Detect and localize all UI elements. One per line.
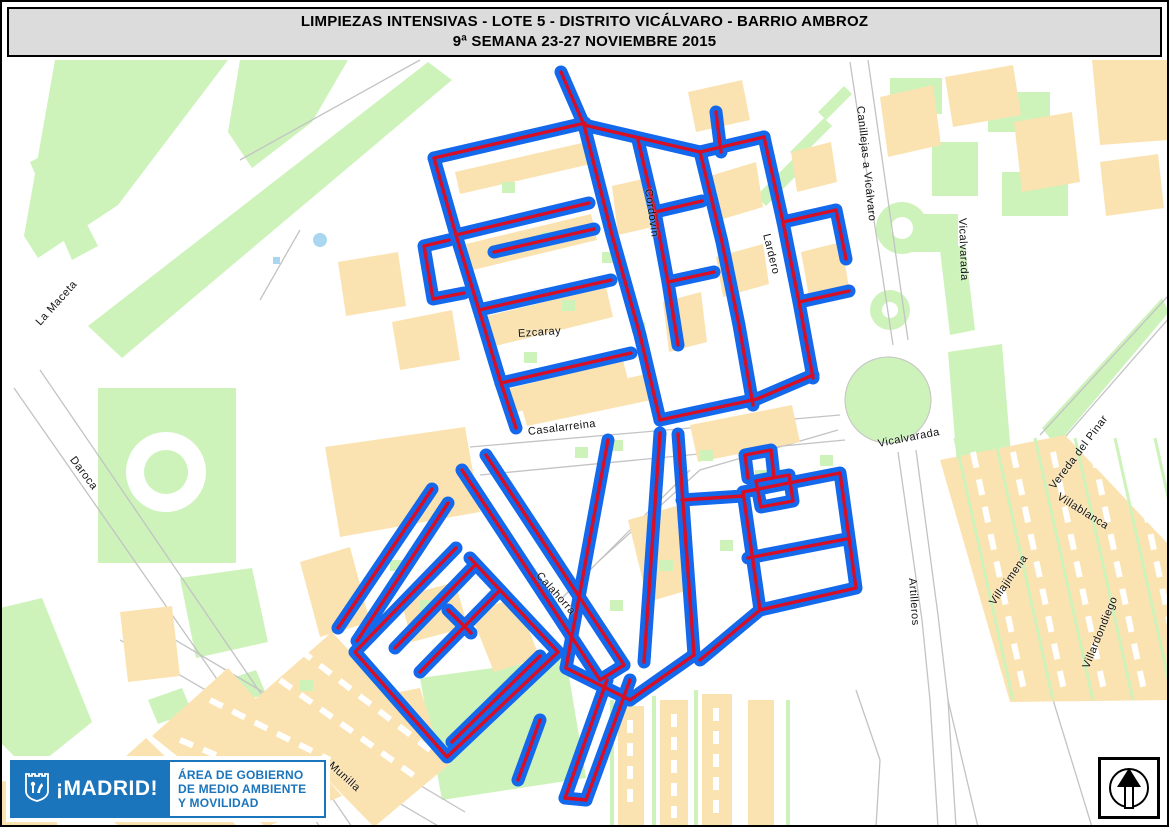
map-title: LIMPIEZAS INTENSIVAS - LOTE 5 - DISTRITO… bbox=[301, 12, 868, 32]
building-block bbox=[338, 252, 406, 316]
madrid-logo-blue-panel: ¡MADRID! bbox=[12, 762, 170, 816]
park-area bbox=[932, 142, 978, 196]
basemap-svg bbox=[0, 0, 1169, 827]
map-canvas bbox=[0, 0, 1169, 827]
madrid-logo: ¡MADRID! ÁREA DE GOBIERNO DE MEDIO AMBIE… bbox=[10, 760, 326, 818]
north-arrow-icon bbox=[1105, 764, 1153, 812]
building-block bbox=[1014, 112, 1080, 192]
building-block bbox=[880, 85, 941, 157]
madrid-department-text: ÁREA DE GOBIERNO DE MEDIO AMBIENTE Y MOV… bbox=[170, 762, 324, 816]
north-arrow bbox=[1098, 757, 1160, 819]
madrid-crest-icon bbox=[24, 771, 50, 808]
building-block bbox=[1092, 60, 1169, 145]
street-label: Vicalvarada bbox=[956, 218, 970, 281]
pond bbox=[313, 233, 327, 247]
building-block bbox=[748, 700, 774, 827]
title-bar: LIMPIEZAS INTENSIVAS - LOTE 5 - DISTRITO… bbox=[7, 7, 1162, 57]
building-block bbox=[1100, 154, 1164, 216]
park-area bbox=[420, 658, 586, 800]
map-subtitle: 9ª SEMANA 23-27 NOVIEMBRE 2015 bbox=[453, 32, 717, 52]
madrid-wordmark: ¡MADRID! bbox=[56, 777, 158, 801]
building-block bbox=[120, 606, 180, 682]
route-segment bbox=[565, 798, 586, 800]
